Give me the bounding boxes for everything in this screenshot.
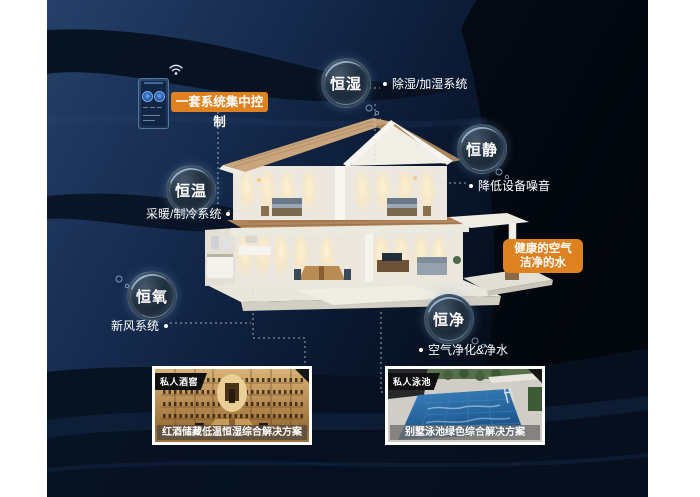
control-panel-readout	[143, 115, 160, 116]
smart-control-panel-illustration	[138, 78, 169, 129]
bullet-dot	[419, 348, 423, 352]
callout-healthy-air-clean-water: 健康的空气 洁净的水	[503, 239, 583, 273]
bubble-label: 恒温	[175, 180, 207, 201]
note-label: 空气净化&净水	[428, 341, 508, 358]
background-panel: 一套系统集中控制 恒湿 恒静 恒温 恒氧 恒净 除湿/加湿系统 降低设备噪音 采…	[47, 0, 648, 497]
note-dehumidify-humidify: 除湿/加湿系统	[383, 75, 467, 92]
note-label: 新风系统	[111, 317, 159, 334]
bullet-dot	[164, 324, 168, 328]
bullet-dot	[226, 212, 230, 216]
card-private-wine-cellar: 私人酒窖 红酒储藏低温恒湿综合解决方案	[152, 366, 312, 445]
wifi-icon	[168, 63, 184, 76]
callout-line1: 健康的空气	[505, 242, 581, 256]
card-caption: 别墅泳池绿色综合解决方案	[390, 425, 540, 440]
bubble-label: 恒静	[466, 139, 498, 160]
poster: 一套系统集中控制 恒湿 恒静 恒温 恒氧 恒净 除湿/加湿系统 降低设备噪音 采…	[0, 0, 700, 497]
callout-line2: 洁净的水	[505, 256, 581, 270]
note-reduce-noise: 降低设备噪音	[469, 177, 550, 194]
bullet-dot	[469, 184, 473, 188]
note-label: 降低设备噪音	[478, 177, 550, 194]
note-label: 除湿/加湿系统	[392, 75, 467, 92]
note-fresh-air: 新风系统	[111, 317, 168, 334]
note-heating-cooling: 采暖/制冷系统	[146, 205, 230, 222]
card-private-pool: 私人泳池 别墅泳池绿色综合解决方案	[385, 366, 545, 445]
feature-bubble-constant-purity: 恒净	[424, 294, 474, 344]
card-caption: 红酒储藏低温恒湿综合解决方案	[157, 425, 307, 440]
central-control-label: 一套系统集中控制	[171, 92, 268, 112]
control-panel-readout	[150, 107, 155, 108]
bubble-label: 恒湿	[330, 73, 362, 94]
control-panel-header	[144, 82, 163, 84]
corner-ribbon	[528, 369, 542, 383]
feature-bubble-constant-oxygen: 恒氧	[127, 271, 177, 321]
bubble-label: 恒氧	[136, 286, 168, 307]
note-air-water-purify: 空气净化&净水	[419, 341, 508, 358]
card-tag: 私人酒窖	[155, 373, 207, 390]
control-panel-readout	[143, 107, 148, 108]
feature-bubble-constant-humidity: 恒湿	[321, 58, 371, 108]
control-dial-icon	[142, 91, 153, 102]
control-panel-readout	[143, 120, 155, 121]
control-panel-readout	[157, 107, 162, 108]
control-dial-icon	[154, 91, 165, 102]
bubble-label: 恒净	[433, 309, 465, 330]
note-label: 采暖/制冷系统	[146, 205, 221, 222]
corner-ribbon	[295, 369, 309, 383]
card-tag: 私人泳池	[388, 373, 440, 390]
feature-bubble-constant-quiet: 恒静	[457, 124, 507, 174]
bullet-dot	[383, 82, 387, 86]
